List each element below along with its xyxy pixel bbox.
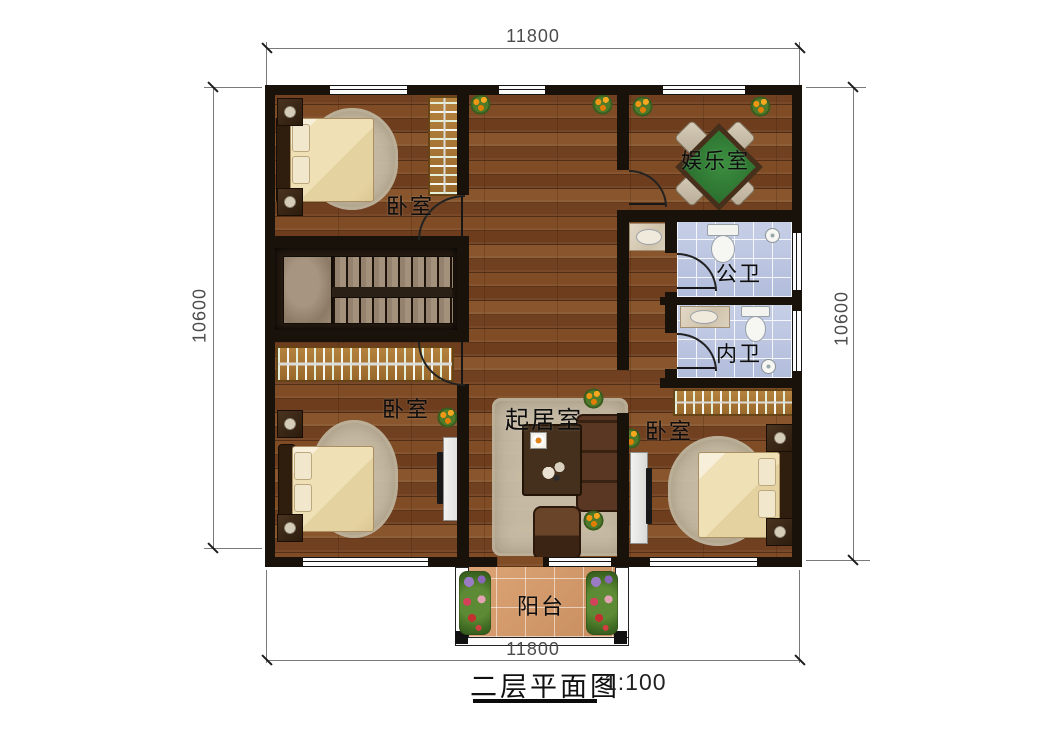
stair-upper-run: [332, 256, 454, 289]
pillow: [294, 484, 312, 512]
extension-line: [799, 570, 800, 663]
door-opening: [497, 557, 543, 567]
door-leaf: [629, 203, 665, 205]
room-label-entertainment: 娱乐室: [681, 145, 750, 175]
nightstand: [277, 188, 303, 216]
dimension-line: [853, 87, 854, 560]
wall: [665, 222, 677, 253]
drawing-scale: 1:100: [604, 669, 667, 696]
dimension-line: [213, 87, 214, 548]
wall: [457, 384, 469, 567]
dimension-line: [267, 660, 800, 661]
room-label-bedroom-bl: 卧室: [382, 392, 430, 424]
window: [499, 85, 545, 95]
dimension-value-left: 10600: [190, 276, 211, 356]
window: [792, 233, 802, 290]
flower-pot-icon: [583, 510, 604, 531]
window: [303, 557, 428, 567]
flower-pot-icon: [750, 96, 771, 117]
balcony-post: [614, 631, 627, 644]
dimension-value-top: 11800: [483, 26, 583, 47]
nightstand: [277, 514, 303, 542]
wall: [665, 305, 677, 333]
flower-pot-icon: [583, 388, 604, 409]
shower-head-icon: [761, 359, 776, 374]
flower-pot-icon: [592, 94, 613, 115]
shower-head-icon: [765, 228, 780, 243]
pillow: [758, 458, 776, 486]
title-underline: [473, 699, 597, 703]
pillow: [292, 156, 310, 184]
rack-clothes: [675, 391, 793, 414]
door-leaf: [677, 367, 715, 369]
pillow: [758, 490, 776, 518]
room-label-living: 起居室: [505, 400, 583, 435]
dimension-line: [267, 48, 800, 49]
window: [330, 85, 407, 95]
room-label-private-bath: 内卫: [716, 338, 762, 368]
wall: [617, 222, 629, 370]
tv-icon: [437, 452, 443, 504]
armchair: [533, 506, 581, 560]
wall: [265, 330, 469, 342]
sink-basin-icon: [636, 229, 662, 245]
tv-icon: [646, 468, 652, 524]
tea-set-icon: [538, 456, 568, 484]
wall: [617, 210, 802, 222]
window: [549, 557, 611, 567]
room-label-balcony: 阳台: [517, 589, 565, 621]
window: [792, 311, 802, 371]
flower-pot-icon: [470, 94, 491, 115]
pillow: [294, 452, 312, 480]
wall: [660, 378, 802, 388]
door-leaf: [677, 287, 715, 289]
wall: [617, 85, 629, 170]
extension-line: [806, 87, 866, 88]
room-label-public-bath: 公卫: [716, 258, 762, 288]
clothes-rack: [673, 389, 795, 416]
dimension-value-right: 10600: [832, 279, 853, 359]
stair-lower-run: [332, 297, 454, 324]
room-label-bedroom-tl: 卧室: [386, 189, 434, 221]
flower-pot-icon: [437, 407, 458, 428]
wall: [457, 85, 469, 195]
door-leaf: [461, 196, 463, 238]
stair-mid-rail: [332, 287, 452, 297]
window: [650, 557, 757, 567]
wall: [660, 297, 802, 305]
extension-line: [806, 560, 870, 561]
wardrobe-clothes: [430, 98, 459, 194]
floor-plan-sheet: 卧室 娱乐室 公卫 内卫 卧室 起居室 卧室 阳台 11800 11800 10…: [0, 0, 1060, 749]
wall: [457, 248, 469, 330]
planter-icon: [586, 571, 618, 635]
door-leaf: [461, 342, 463, 384]
pillow: [292, 124, 310, 152]
window: [663, 85, 745, 95]
nightstand: [277, 98, 303, 126]
dimension-value-bottom: 11800: [483, 639, 583, 660]
sink-basin-icon: [690, 310, 718, 324]
nightstand: [766, 424, 794, 452]
wall: [265, 85, 275, 567]
planter-icon: [459, 571, 491, 635]
nightstand: [766, 518, 794, 546]
wall: [617, 413, 629, 567]
extension-line: [266, 570, 267, 663]
nightstand: [277, 410, 303, 438]
flower-pot-icon: [632, 96, 653, 117]
room-label-bedroom-br: 卧室: [645, 414, 693, 446]
stair-landing: [283, 256, 332, 324]
